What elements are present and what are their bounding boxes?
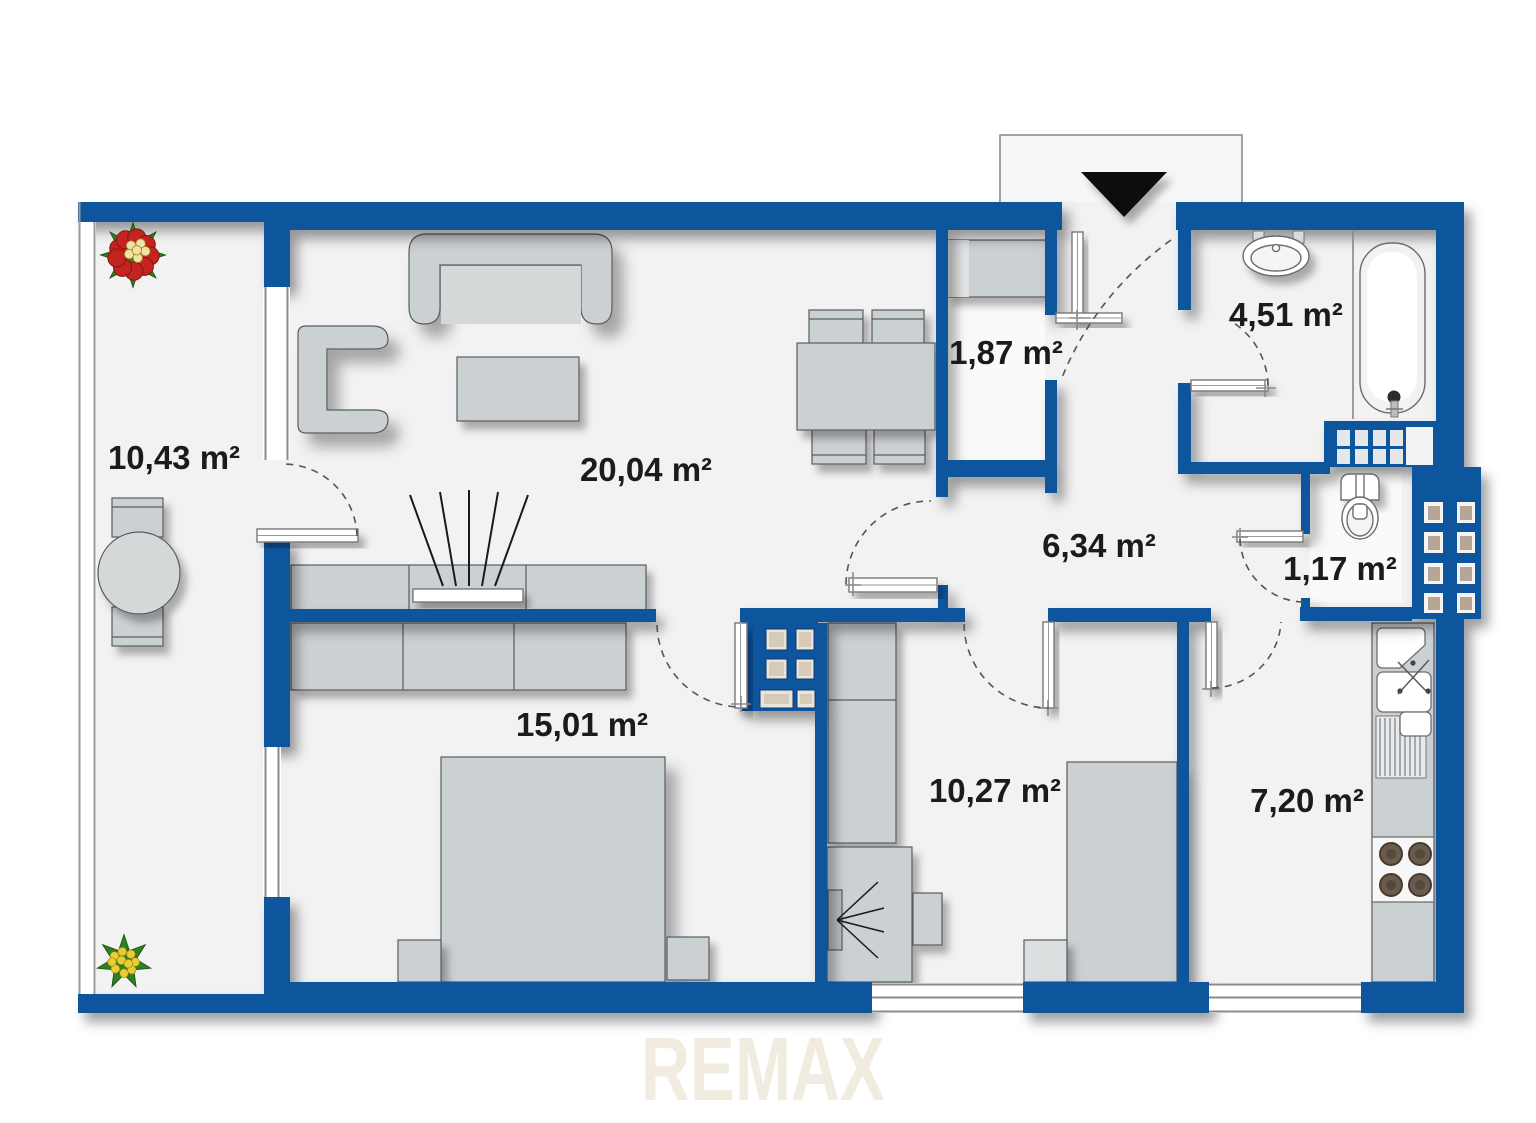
- svg-text:1,87 m²: 1,87 m²: [949, 334, 1063, 371]
- svg-text:20,04 m²: 20,04 m²: [580, 451, 712, 488]
- svg-text:10,27 m²: 10,27 m²: [929, 772, 1061, 809]
- svg-text:15,01 m²: 15,01 m²: [516, 706, 648, 743]
- svg-text:REMAX: REMAX: [641, 1019, 885, 1120]
- svg-text:4,51 m²: 4,51 m²: [1229, 296, 1343, 333]
- svg-text:7,20 m²: 7,20 m²: [1250, 782, 1364, 819]
- svg-text:6,34 m²: 6,34 m²: [1042, 527, 1156, 564]
- svg-text:1,17 m²: 1,17 m²: [1283, 550, 1397, 587]
- svg-text:10,43 m²: 10,43 m²: [108, 439, 240, 476]
